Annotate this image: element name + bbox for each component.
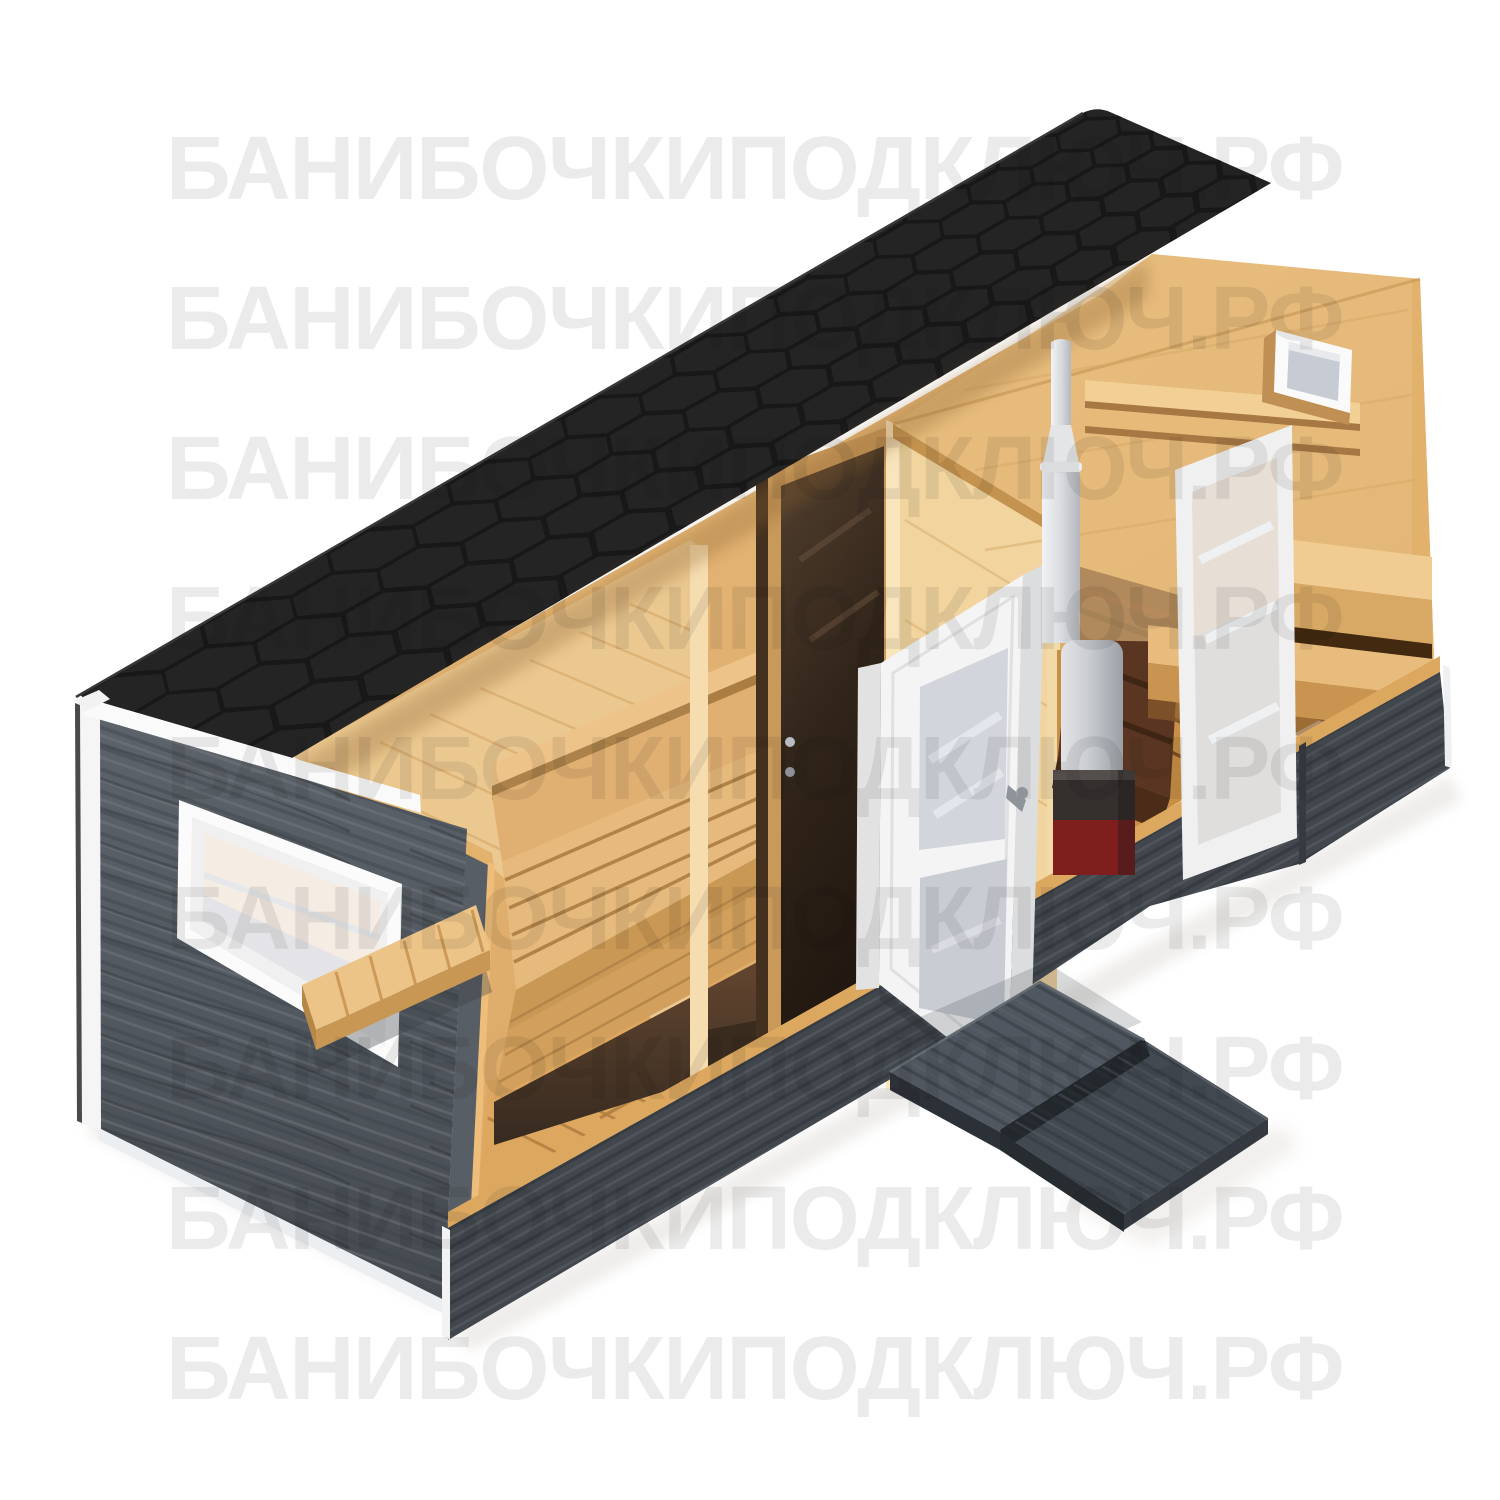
svg-text:БАНИБОЧКИПОДКЛЮЧ.РФ: БАНИБОЧКИПОДКЛЮЧ.РФ — [166, 1169, 1343, 1269]
svg-text:БАНИБОЧКИПОДКЛЮЧ.РФ: БАНИБОЧКИПОДКЛЮЧ.РФ — [166, 269, 1343, 369]
svg-text:БАНИБОЧКИПОДКЛЮЧ.РФ: БАНИБОЧКИПОДКЛЮЧ.РФ — [166, 869, 1343, 969]
svg-text:БАНИБОЧКИПОДКЛЮЧ.РФ: БАНИБОЧКИПОДКЛЮЧ.РФ — [166, 719, 1343, 819]
svg-text:БАНИБОЧКИПОДКЛЮЧ.РФ: БАНИБОЧКИПОДКЛЮЧ.РФ — [166, 1019, 1343, 1119]
svg-text:БАНИБОЧКИПОДКЛЮЧ.РФ: БАНИБОЧКИПОДКЛЮЧ.РФ — [166, 1319, 1343, 1419]
svg-text:БАНИБОЧКИПОДКЛЮЧ.РФ: БАНИБОЧКИПОДКЛЮЧ.РФ — [166, 569, 1343, 669]
svg-text:БАНИБОЧКИПОДКЛЮЧ.РФ: БАНИБОЧКИПОДКЛЮЧ.РФ — [166, 119, 1343, 219]
svg-text:БАНИБОЧКИПОДКЛЮЧ.РФ: БАНИБОЧКИПОДКЛЮЧ.РФ — [166, 419, 1343, 519]
